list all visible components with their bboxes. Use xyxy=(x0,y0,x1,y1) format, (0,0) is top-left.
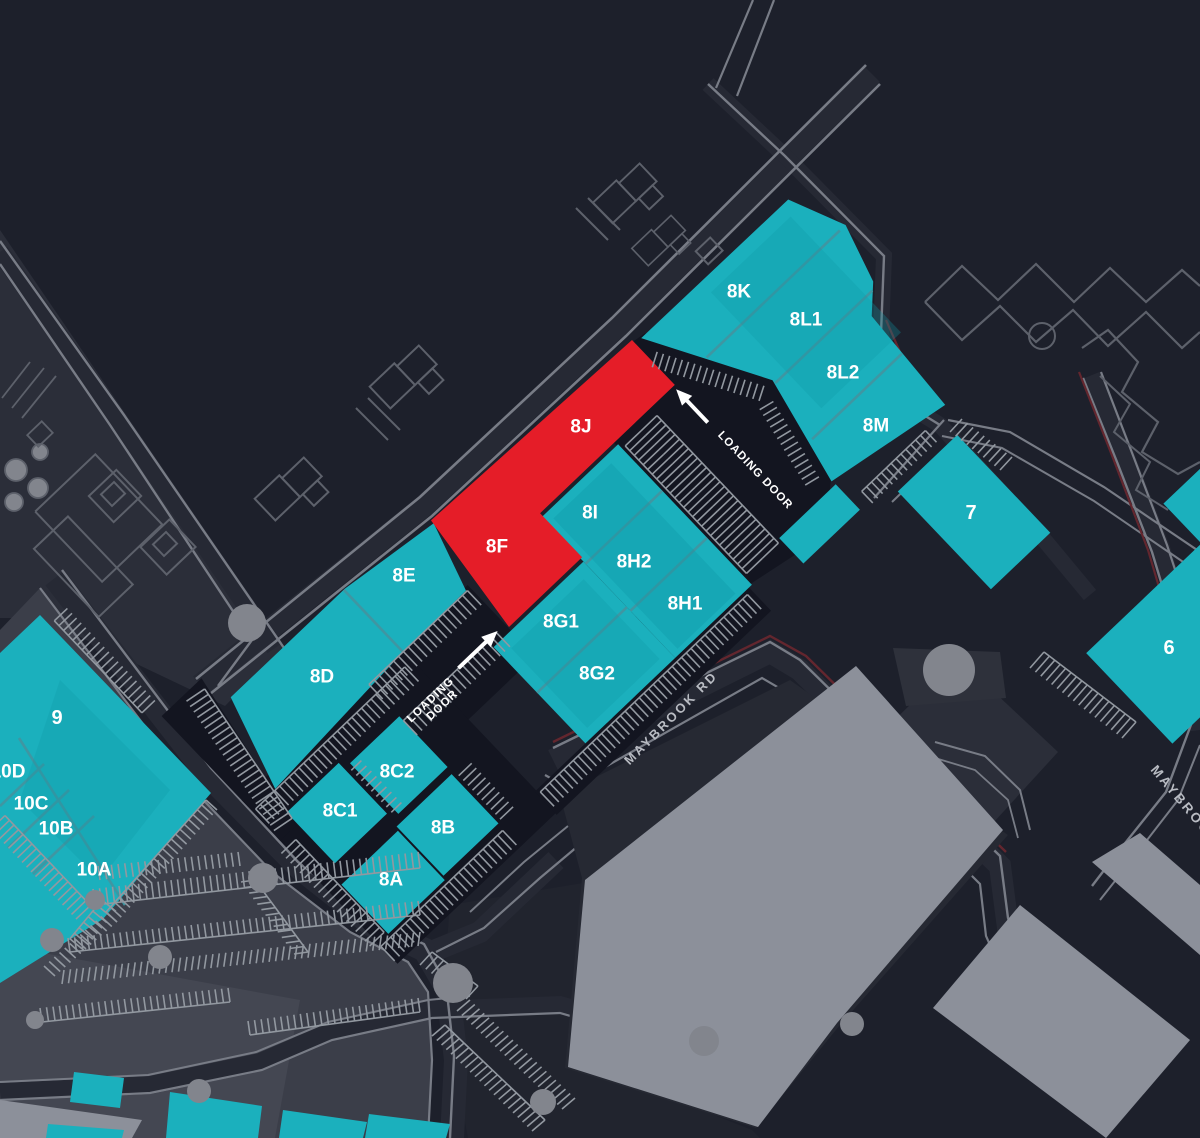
svg-text:8F: 8F xyxy=(486,537,508,558)
svg-text:8H1: 8H1 xyxy=(668,594,703,615)
svg-text:8I: 8I xyxy=(582,503,598,524)
svg-text:10B: 10B xyxy=(39,819,74,840)
svg-text:8G2: 8G2 xyxy=(579,664,615,685)
svg-text:8C2: 8C2 xyxy=(380,762,415,783)
svg-text:8G1: 8G1 xyxy=(543,612,579,633)
svg-text:8C1: 8C1 xyxy=(323,801,358,822)
svg-text:8H2: 8H2 xyxy=(617,552,652,573)
svg-text:7: 7 xyxy=(965,502,976,524)
svg-text:10C: 10C xyxy=(14,794,49,815)
svg-text:8A: 8A xyxy=(379,870,404,891)
svg-text:8K: 8K xyxy=(727,282,752,303)
svg-text:8B: 8B xyxy=(431,818,455,839)
svg-text:8L1: 8L1 xyxy=(790,310,823,331)
svg-text:8E: 8E xyxy=(392,566,415,587)
svg-text:10D: 10D xyxy=(0,762,25,783)
svg-text:8L2: 8L2 xyxy=(827,363,860,384)
svg-text:8D: 8D xyxy=(310,667,334,688)
svg-text:6: 6 xyxy=(1163,637,1174,659)
svg-text:9: 9 xyxy=(51,707,62,729)
svg-text:10A: 10A xyxy=(77,860,112,881)
svg-text:8J: 8J xyxy=(570,417,591,438)
svg-text:8M: 8M xyxy=(863,416,889,437)
